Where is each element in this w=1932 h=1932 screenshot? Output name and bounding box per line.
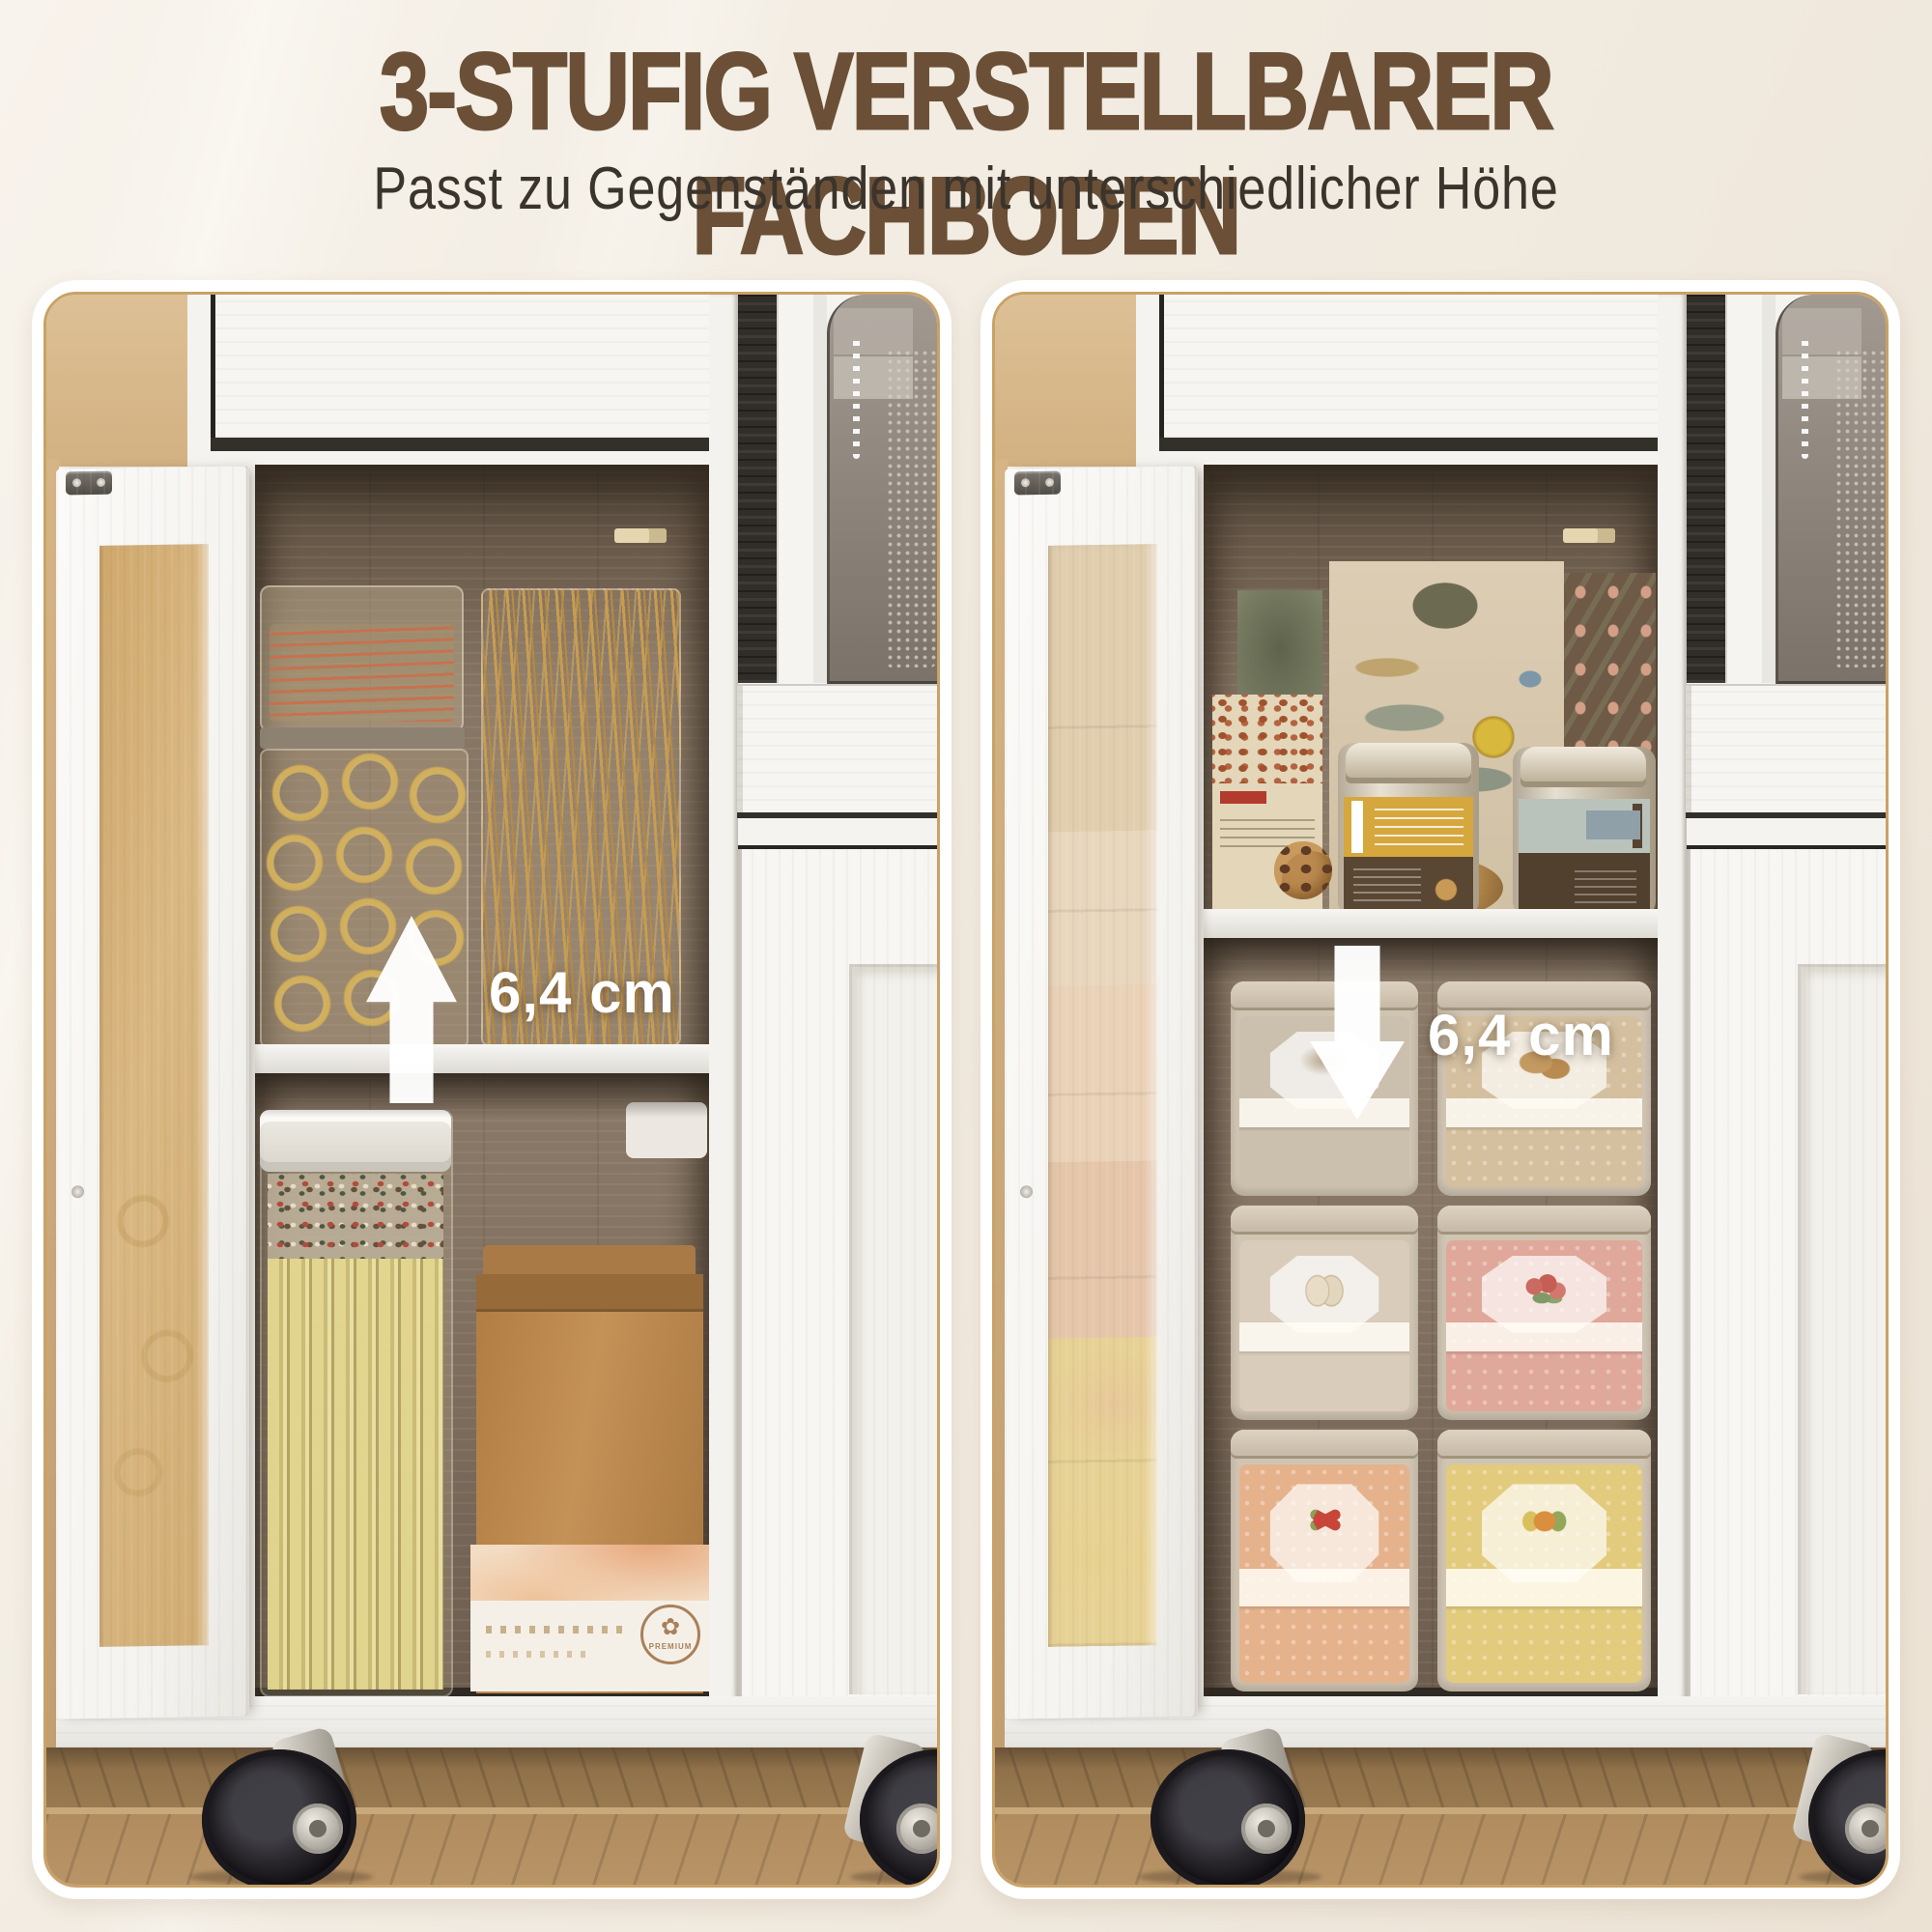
coffee-box: PREMIUM <box>470 1545 710 1691</box>
panel-shelf-raised: 6,4 cm <box>980 280 1900 1899</box>
shelf-shadow <box>1204 938 1658 982</box>
door-glass <box>99 544 209 1647</box>
adjustable-shelf <box>1204 909 1658 938</box>
measurement-label: 6,4 cm <box>1428 1002 1614 1068</box>
tin-body <box>1344 857 1473 913</box>
caster-hub <box>293 1804 343 1854</box>
cabinet-divider <box>709 295 738 1713</box>
storage-tin-garlic <box>1231 1206 1418 1420</box>
wall-backdrop <box>46 295 187 467</box>
premium-stamp-icon: PREMIUM <box>640 1605 700 1664</box>
panel-shelf-lowered: PREMIUM <box>32 280 952 1899</box>
photo-shelf-raised: 6,4 cm <box>992 292 1889 1888</box>
caster-hub <box>1241 1804 1292 1854</box>
door-hinge <box>66 471 112 496</box>
door-recessed-panel <box>1798 964 1888 1694</box>
drawer-gap <box>211 438 709 451</box>
tin-lid <box>1520 747 1646 787</box>
door-glass <box>1048 544 1157 1647</box>
storage-tin-vegetables <box>1437 1430 1651 1691</box>
measurement-label: 6,4 cm <box>489 959 675 1026</box>
dark-side-panel <box>1687 295 1725 683</box>
vegetables-sketch-icon <box>1516 1499 1574 1542</box>
floor-seam <box>46 1807 939 1814</box>
lasagna-strips <box>268 1259 443 1690</box>
glass-container-ring-pasta <box>260 749 469 1048</box>
storage-tin-roses <box>1437 1206 1651 1420</box>
microwave-frame <box>1725 295 1776 683</box>
floor-seam <box>995 1807 1888 1814</box>
tin-face <box>1446 1464 1642 1683</box>
top-drawer <box>1159 295 1667 438</box>
storage-tin-mushroom <box>1231 981 1418 1196</box>
microwave-door <box>827 295 940 685</box>
storage-tin-chili <box>1231 1430 1418 1691</box>
tin-face <box>1446 1240 1642 1411</box>
airtight-container-lasagna <box>260 1110 453 1697</box>
drawer-gap <box>1159 438 1658 451</box>
cabinet-divider <box>1658 295 1687 1713</box>
peppercorn-layer <box>268 1174 443 1259</box>
wood-floor-front <box>995 1814 1888 1888</box>
garlic-sketch-icon <box>1295 1267 1353 1310</box>
shelf-shadow <box>255 1073 709 1118</box>
door-hinge <box>1014 471 1061 496</box>
open-glass-door <box>56 466 249 1719</box>
metal-tin-yellow-label <box>1338 743 1479 917</box>
caster-hub <box>896 1804 940 1854</box>
door-latch <box>614 528 667 543</box>
floor-shadow <box>46 1747 939 1769</box>
coffee-box-artwork <box>470 1545 710 1601</box>
metal-tin-teal-label <box>1513 747 1656 917</box>
side-drawer <box>1686 684 1888 814</box>
lower-right-door <box>738 845 939 1719</box>
wall-backdrop <box>995 295 1136 467</box>
tin-face <box>1239 1240 1409 1411</box>
photo-shelf-lowered: PREMIUM <box>43 292 940 1888</box>
door-screw <box>71 1185 84 1198</box>
tin-face <box>1239 1464 1409 1683</box>
door-screw <box>1020 1185 1033 1198</box>
caster-hub <box>1845 1804 1889 1854</box>
tin-label <box>1519 799 1650 853</box>
microwave-frame <box>777 295 827 683</box>
page-subtitle: Passt zu Gegenständen mit unterschiedlic… <box>155 155 1777 223</box>
top-drawer <box>211 295 719 438</box>
product-infographic: 3-STUFIG VERSTELLBARER FACHBODEN Passt z… <box>0 0 1932 1932</box>
wood-floor-front <box>46 1814 939 1888</box>
cookie-box <box>1212 695 1322 915</box>
microwave-door <box>1776 295 1889 685</box>
page-title: 3-STUFIG VERSTELLBARER FACHBODEN <box>174 29 1758 278</box>
door-latch <box>1563 528 1615 543</box>
tin-label <box>1344 797 1473 857</box>
airtight-lid <box>260 1110 451 1172</box>
door-recessed-panel <box>849 964 939 1694</box>
side-drawer <box>737 684 939 814</box>
tin-body <box>1519 853 1650 913</box>
side-drawer-gap <box>737 812 939 818</box>
glass-container-pasta-strands <box>260 585 464 732</box>
dark-side-panel <box>738 295 777 683</box>
side-drawer-gap <box>1686 812 1888 818</box>
open-glass-door <box>1005 466 1198 1719</box>
lower-right-door <box>1687 845 1888 1719</box>
roses-sketch-icon <box>1516 1267 1574 1310</box>
tin-lid <box>1346 743 1471 783</box>
floor-shadow <box>995 1747 1888 1769</box>
premium-stamp-label: PREMIUM <box>643 1642 697 1651</box>
adjustable-shelf <box>255 1044 709 1073</box>
chili-sketch-icon <box>1295 1499 1353 1542</box>
ring-pasta-container-lid <box>260 727 465 749</box>
cookie-image <box>1274 841 1332 899</box>
